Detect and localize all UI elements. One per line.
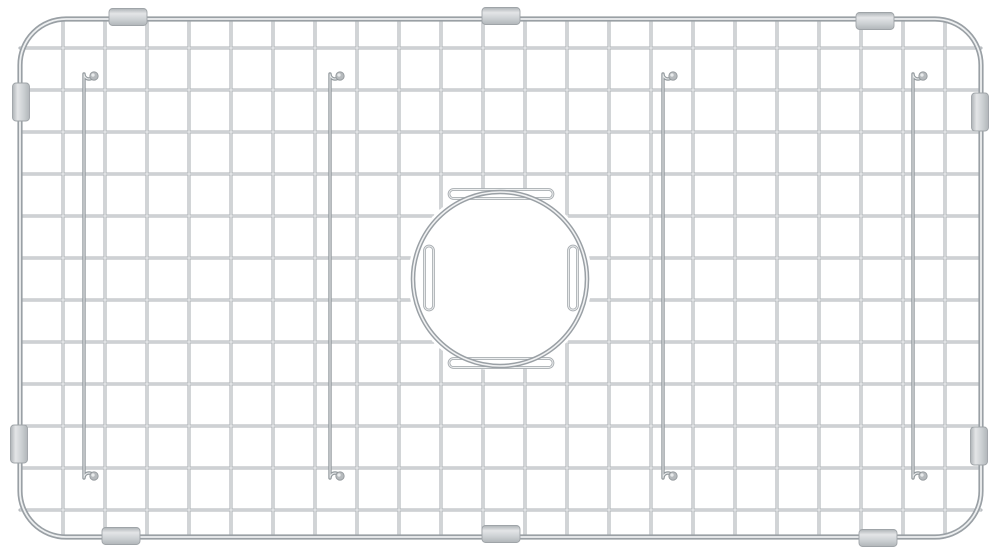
foot-wire xyxy=(84,74,94,478)
foot-wire-ball-shine xyxy=(91,73,94,76)
wire-lattice xyxy=(20,19,981,537)
bumper-foot xyxy=(859,530,897,547)
bumper-foot xyxy=(102,528,140,545)
foot-wire-ball-shine xyxy=(920,473,923,476)
frame-wire xyxy=(20,19,981,537)
bumper-foot xyxy=(971,427,988,465)
foot-wire-ball-shine xyxy=(337,473,340,476)
product-photo xyxy=(0,0,1000,559)
sink-grid-image xyxy=(0,0,1000,559)
foot-wire-ball-shine xyxy=(91,473,94,476)
foot-wire xyxy=(663,74,673,478)
drain-ring xyxy=(413,192,587,366)
feet-wires xyxy=(84,74,923,478)
drain-opening xyxy=(413,192,587,366)
bumper-foot xyxy=(109,9,147,26)
foot-wire xyxy=(913,74,923,478)
bumper-foot xyxy=(856,13,894,30)
bumper-foot xyxy=(482,526,520,543)
foot-wire-ball-shine xyxy=(337,73,340,76)
bumper-foot xyxy=(482,8,520,25)
frame xyxy=(20,19,981,537)
frame xyxy=(20,19,981,537)
bumper-foot xyxy=(13,83,30,121)
feet-wires xyxy=(84,74,923,478)
wire-lattice xyxy=(20,19,981,537)
foot-wire xyxy=(330,74,340,478)
foot-wire-ball-shine xyxy=(920,73,923,76)
bumper-foot xyxy=(11,425,28,463)
bumper-foot xyxy=(972,93,989,131)
foot-wire-ball-shine xyxy=(670,73,673,76)
frame-wire xyxy=(20,19,981,537)
foot-wire-ball-shine xyxy=(670,473,673,476)
